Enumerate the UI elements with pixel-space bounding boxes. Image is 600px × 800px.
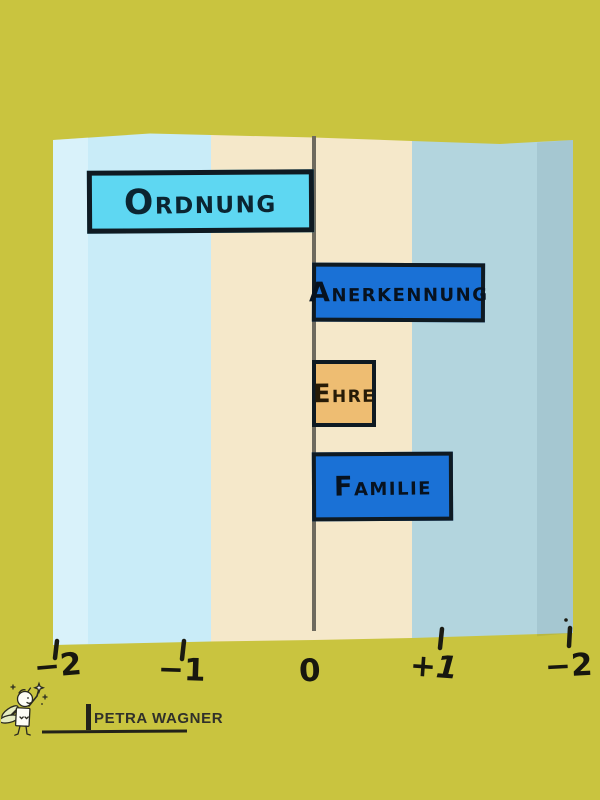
bar-label-familie: Familie xyxy=(333,470,431,502)
signature-name: PETRA WAGNER xyxy=(94,710,223,727)
page-curl-left-highlight xyxy=(53,138,88,646)
bar-familie: Familie xyxy=(312,452,453,522)
tick-label-neg1: −1 xyxy=(157,651,206,689)
fairy-doodle-icon xyxy=(1,681,49,743)
tick-label-neg2-right: −2 xyxy=(544,647,593,685)
tick-label-zero: 0 xyxy=(298,653,321,690)
tick-label-neg2-left: −2 xyxy=(33,646,84,686)
bar-ordnung: Ordnung xyxy=(87,169,314,233)
bar-label-ordnung: Ordnung xyxy=(124,180,277,222)
signature-bar-mark xyxy=(86,704,91,730)
bar-anerkennung: Anerkennung xyxy=(312,263,485,323)
band-right-bluegray xyxy=(412,140,573,638)
bar-label-ehre: Ehre xyxy=(313,378,376,409)
illustrated-bar-chart-canvas: { "background_color": "#c9c43f", "chart_… xyxy=(0,0,600,800)
tick-label-pos1: +1 xyxy=(409,647,459,686)
bar-ehre: Ehre xyxy=(312,360,376,427)
signature-underline xyxy=(42,729,187,733)
tick-dot xyxy=(564,618,568,622)
page-curl-right-shade xyxy=(537,140,573,636)
bar-label-anerkennung: Anerkennung xyxy=(309,277,489,309)
